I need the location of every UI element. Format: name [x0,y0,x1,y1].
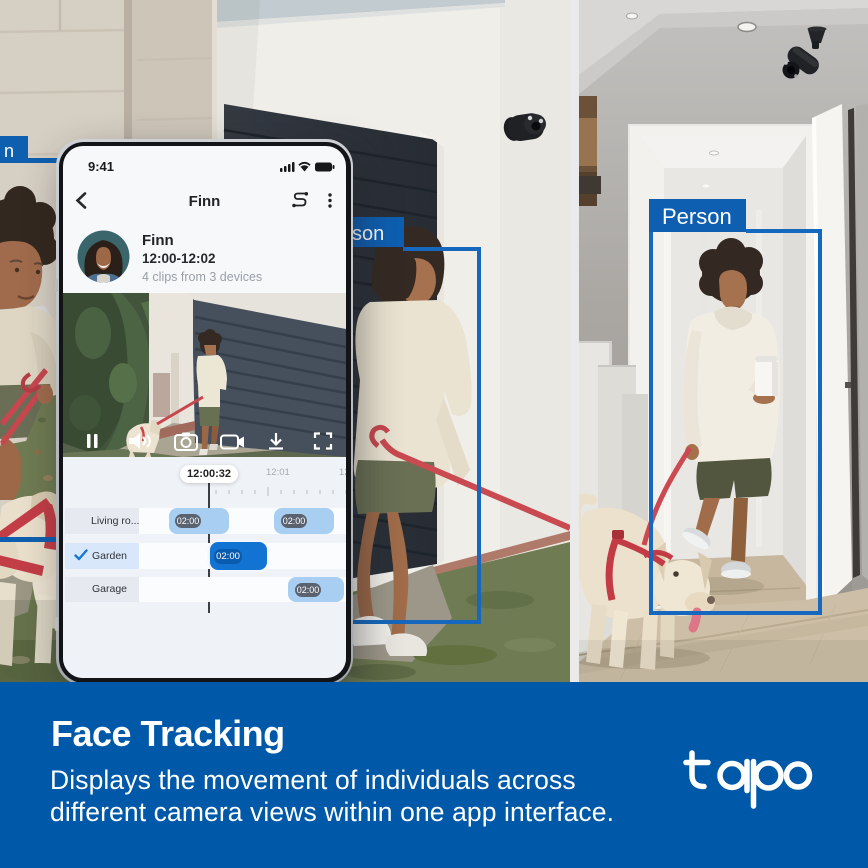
svg-text:son: son [352,223,384,245]
svg-text:n: n [4,141,14,161]
svg-text:Person: Person [662,204,732,229]
